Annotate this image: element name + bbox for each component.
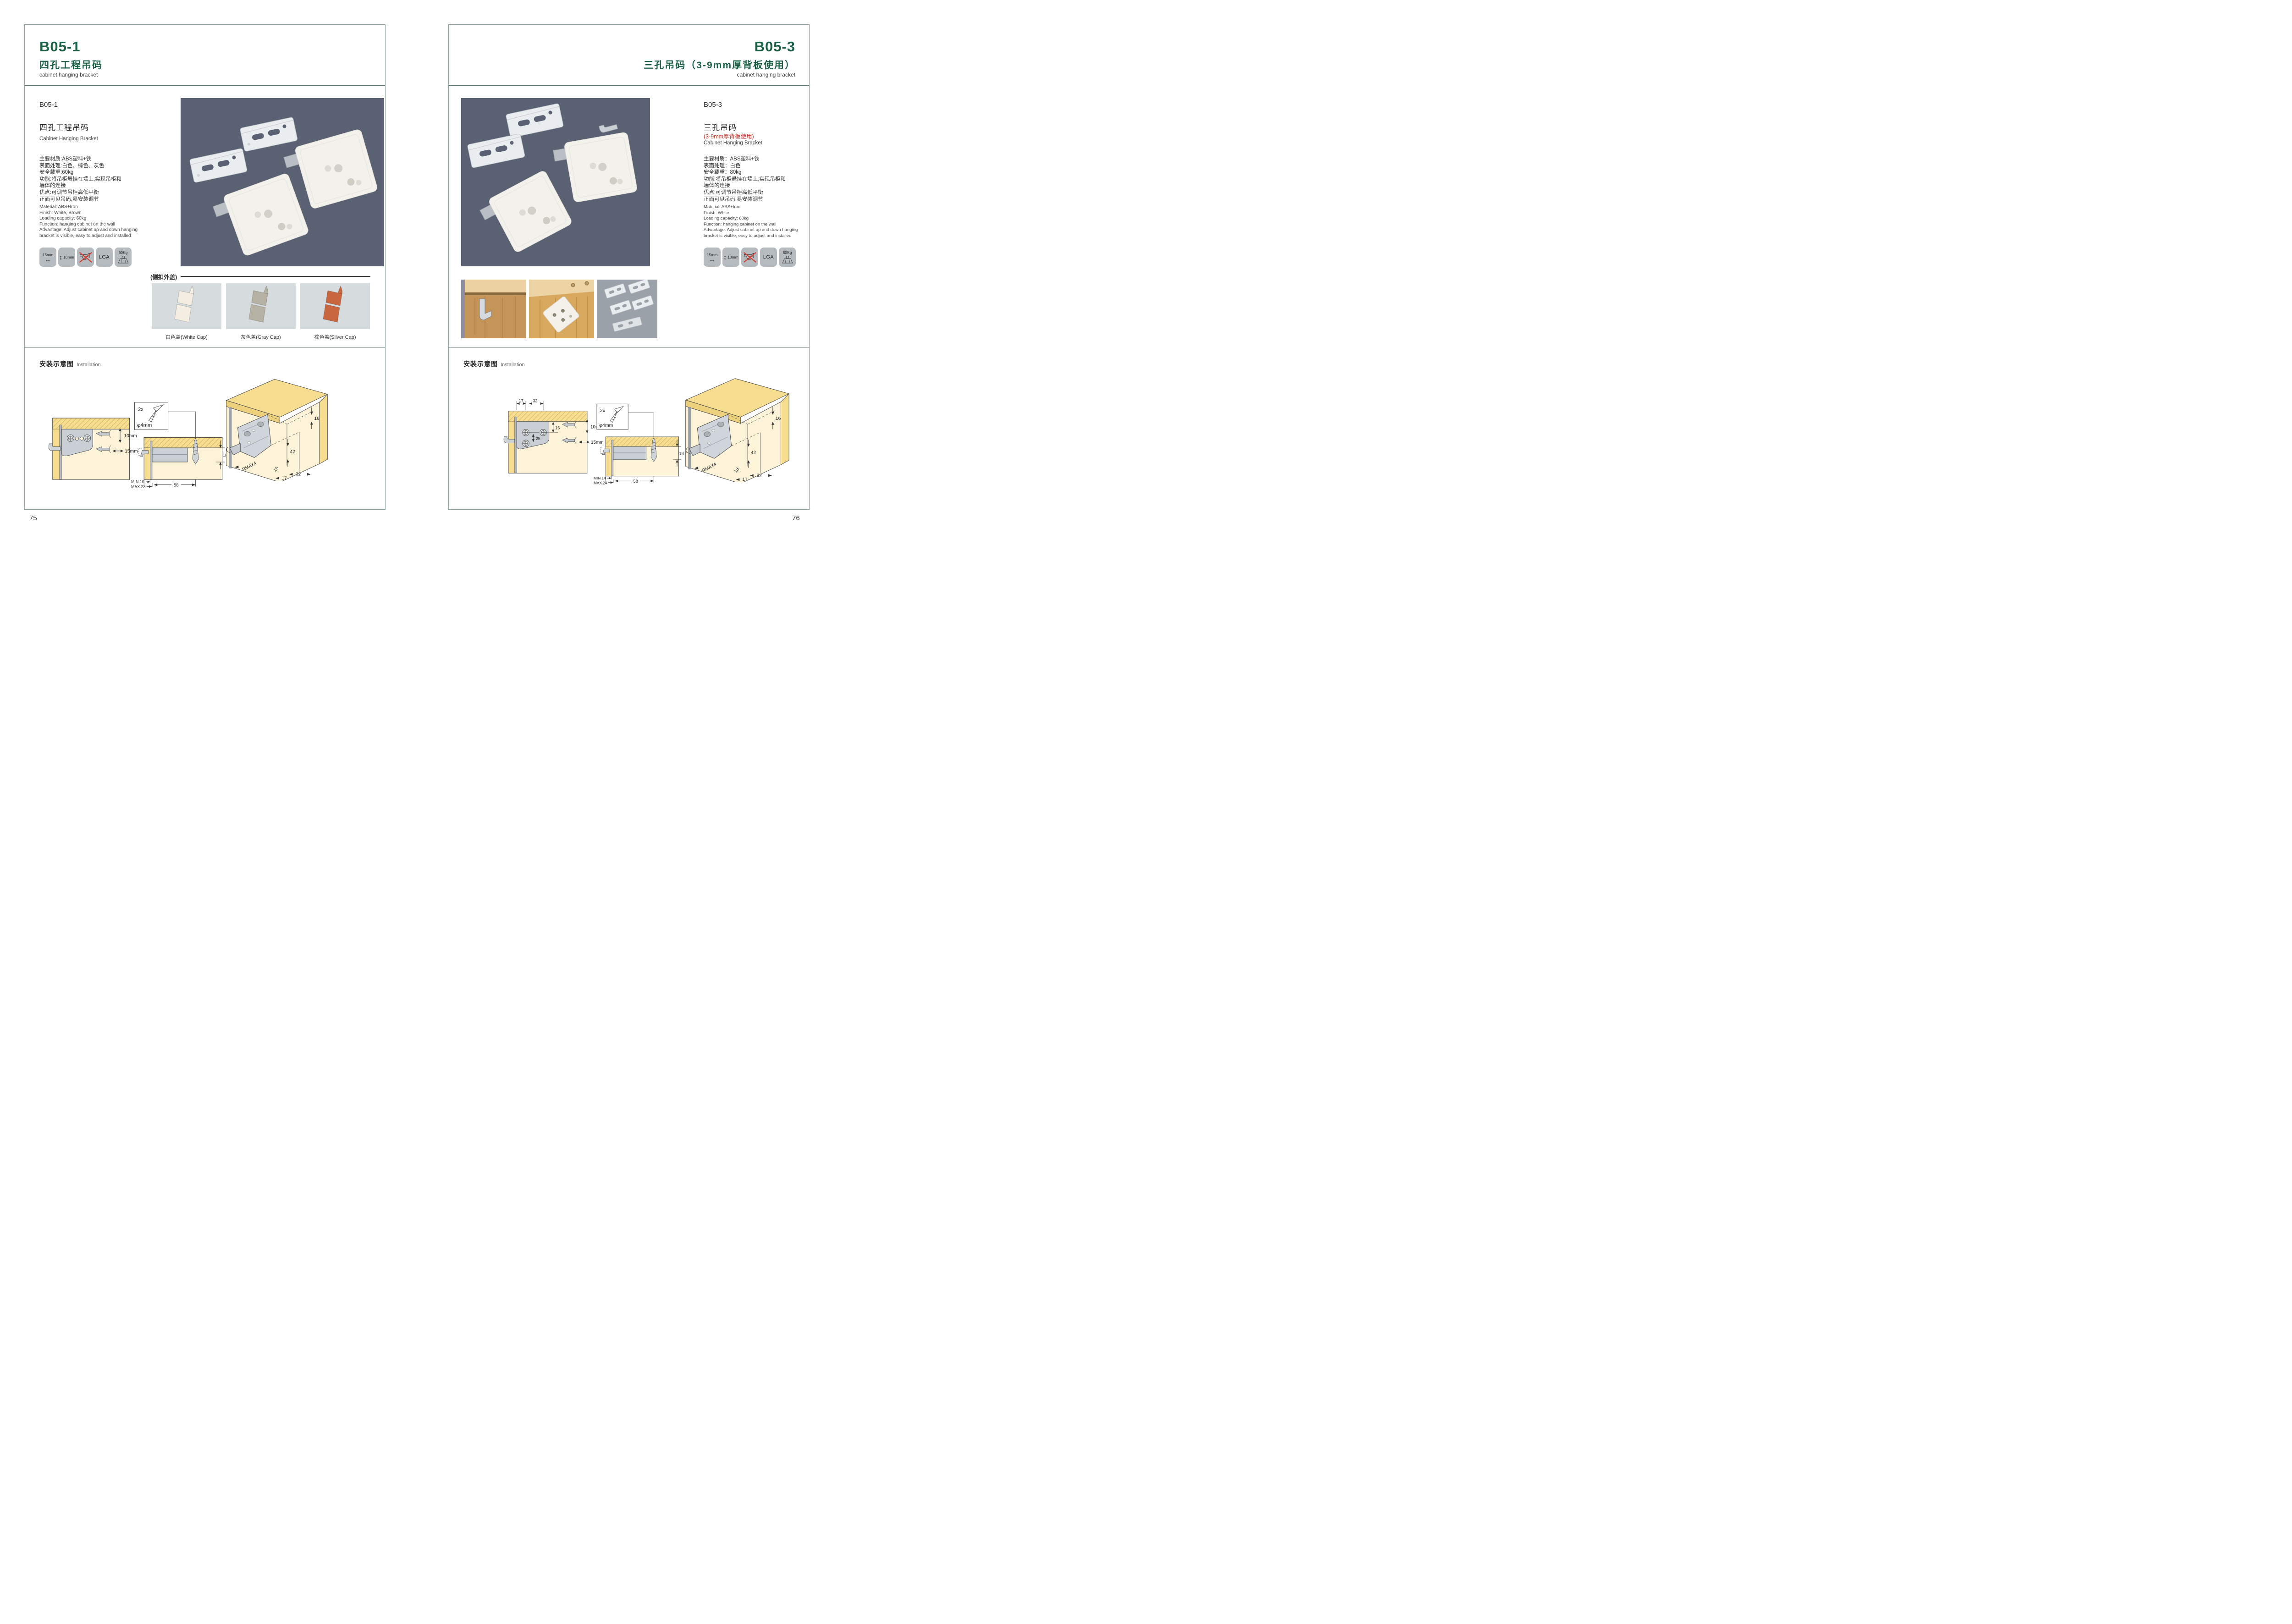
height-icon: ↕ 10mm — [722, 248, 739, 267]
spec-line: Advantage: Adjust cabinet up and down ha… — [704, 227, 798, 233]
product-code: B05-1 — [39, 101, 58, 109]
horizontal-arrow-icon: ↔ — [45, 258, 51, 262]
cap-swatch — [226, 283, 296, 329]
spec-line: 优点:可调节吊柜高低平衡 — [704, 189, 786, 196]
height-label: 10mm — [727, 255, 738, 259]
spec-line: bracket is visible, easy to adjust and i… — [704, 233, 798, 239]
vertical-arrow-icon: ↕ — [59, 253, 62, 261]
lga-icon: LGA — [96, 248, 113, 267]
svg-text:32: 32 — [296, 472, 301, 477]
svg-text:16: 16 — [555, 425, 560, 430]
svg-text:42: 42 — [290, 450, 296, 455]
svg-text:MAX.23: MAX.23 — [131, 484, 146, 489]
specs-chinese: 主要材质:ABS塑料+铁 表面处理:白色、棕色、灰色 安全载重:60kg 功能:… — [39, 156, 121, 203]
cap-label: 灰色盖(Gray Cap) — [226, 333, 296, 341]
specs-english: Material: ABS+Iron Finish: White, Brown … — [39, 204, 138, 239]
cap-white: 白色盖(White Cap) — [152, 283, 221, 341]
svg-text:17: 17 — [281, 476, 287, 481]
install-diagram-cabinet: 16 42 RMAX4 16 17 32 — [221, 373, 331, 481]
product-name-en: Cabinet Hanging Bracket — [39, 136, 98, 142]
svg-text:32: 32 — [533, 399, 537, 403]
spec-line: Finish: White, Brown — [39, 210, 138, 216]
spec-line: 表面处理:白色、棕色、灰色 — [39, 163, 121, 170]
spec-line: Loading capacity: 60kg — [39, 216, 138, 222]
no-drill-icon — [741, 248, 758, 267]
application-photo-bracket — [529, 280, 594, 338]
product-code-heading: B05-1 — [39, 39, 80, 55]
product-note-red: (3-9mm厚背板使用) — [704, 132, 754, 140]
horizontal-arrow-icon: ↔ — [709, 258, 715, 262]
spec-line: 墙体的连接 — [704, 182, 786, 189]
catalog-page-b05-3: B05-3 三孔吊码（3-9mm厚背板使用） cabinet hanging b… — [448, 24, 810, 510]
weight-icon: 80Kg — [779, 248, 796, 267]
page-header: B05-3 三孔吊码（3-9mm厚背板使用） cabinet hanging b… — [449, 25, 809, 86]
svg-text:MIN.14: MIN.14 — [594, 476, 606, 480]
catalog-spread: B05-1 四孔工程吊码 cabinet hanging bracket B05… — [0, 0, 830, 541]
application-photo-clip — [461, 280, 526, 338]
svg-text:2x: 2x — [600, 408, 606, 413]
product-name-en: Cabinet Hanging Bracket — [704, 140, 762, 146]
spec-line: 功能:将吊柜悬挂在墙上,实现吊柜和 — [39, 176, 121, 183]
caps-section-label: (侧扣外盖) — [150, 272, 177, 281]
product-name-cn: 四孔工程吊码 — [39, 121, 89, 132]
svg-text:17: 17 — [742, 477, 748, 482]
install-diagram-screw: 2x φ4mm — [131, 400, 234, 490]
svg-text:17: 17 — [519, 399, 523, 403]
spec-line: 表面处理：白色 — [704, 163, 786, 170]
lga-label: LGA — [99, 254, 110, 260]
lga-label: LGA — [763, 254, 774, 260]
weight-label: 80Kg — [783, 250, 792, 255]
specs-english: Material: ABS+Iron Finish: White Loading… — [704, 204, 798, 239]
catalog-page-b05-1: B05-1 四孔工程吊码 cabinet hanging bracket B05… — [24, 24, 386, 510]
weight-icon: 60Kg — [115, 248, 132, 267]
installation-title-en: Installation — [501, 362, 525, 368]
spec-line: 正面可见吊码,易安装调节 — [704, 196, 786, 203]
cap-label: 棕色盖(Silver Cap) — [300, 333, 370, 341]
no-drill-icon — [77, 248, 94, 267]
product-title-cn: 三孔吊码（3-9mm厚背板使用） — [644, 58, 795, 72]
width-icon: 15mm ↔ — [39, 248, 56, 267]
product-name-cn: 三孔吊码 — [704, 121, 737, 132]
install-diagram-section: 17 32 25 16 — [500, 397, 608, 480]
svg-text:φ4mm: φ4mm — [137, 423, 152, 428]
svg-text:MAX.24: MAX.24 — [594, 480, 607, 485]
section-divider — [25, 347, 385, 348]
svg-text:42: 42 — [751, 450, 756, 455]
svg-text:16: 16 — [776, 416, 781, 421]
installation-title: 安装示意图Installation — [463, 359, 525, 369]
spec-line: Loading capacity: 80kg — [704, 216, 798, 222]
product-title-cn: 四孔工程吊码 — [39, 58, 103, 72]
product-title-en: cabinet hanging bracket — [737, 72, 795, 78]
product-photo — [461, 98, 650, 266]
application-photos — [461, 280, 657, 338]
svg-text:MIN.10: MIN.10 — [131, 479, 144, 484]
product-title-en: cabinet hanging bracket — [39, 72, 98, 78]
page-number-right: 76 — [792, 514, 800, 522]
cap-label: 白色盖(White Cap) — [152, 333, 221, 341]
caps-row: 白色盖(White Cap) 灰色盖(Gray Cap) — [152, 283, 370, 341]
spec-line: bracket is visible, easy to adjust and i… — [39, 233, 138, 239]
width-icon: 15mm ↔ — [704, 248, 721, 267]
spec-line: Function: hanging cabinet on the wall — [704, 222, 798, 228]
spec-line: 安全载重：80kg — [704, 169, 786, 176]
spec-line: 墙体的连接 — [39, 182, 121, 189]
specs-chinese: 主要材质：ABS塑料+铁 表面处理：白色 安全载重：80kg 功能:将吊柜悬挂在… — [704, 156, 786, 203]
cap-gray: 灰色盖(Gray Cap) — [226, 283, 296, 341]
install-diagram-section: 10mm 15mm — [45, 406, 139, 483]
spec-line: Advantage: Adjust cabinet up and down ha… — [39, 227, 138, 233]
spec-line: Material: ABS+Iron — [39, 204, 138, 210]
install-diagram-cabinet: 16 42 RMAX4 18 17 32 — [680, 372, 793, 482]
lga-icon: LGA — [760, 248, 777, 267]
page-number-left: 75 — [29, 514, 37, 522]
spec-line: 主要材质:ABS塑料+铁 — [39, 156, 121, 163]
spec-line: 主要材质：ABS塑料+铁 — [704, 156, 786, 163]
svg-text:φ4mm: φ4mm — [599, 423, 613, 428]
spec-line: Function: hanging cabinet on the wall — [39, 222, 138, 228]
cap-swatch — [300, 283, 370, 329]
product-photo — [181, 98, 384, 266]
application-photo-plates — [597, 280, 657, 338]
cap-swatch — [152, 283, 221, 329]
svg-text:32: 32 — [757, 473, 762, 478]
svg-text:25: 25 — [536, 436, 540, 441]
caps-divider-line — [181, 276, 370, 277]
cap-brown: 棕色盖(Silver Cap) — [300, 283, 370, 341]
height-label: 10mm — [63, 255, 74, 259]
spec-line: 安全载重:60kg — [39, 169, 121, 176]
feature-icons: 15mm ↔ ↕ 10mm LGA 80Kg — [704, 248, 796, 267]
installation-title-en: Installation — [77, 362, 101, 368]
svg-text:58: 58 — [634, 479, 638, 484]
spec-line: Material: ABS+Iron — [704, 204, 798, 210]
svg-text:16: 16 — [314, 416, 320, 421]
weight-label: 60Kg — [119, 250, 128, 255]
installation-title-cn: 安装示意图 — [463, 360, 498, 368]
spec-line: 优点:可调节吊柜高低平衡 — [39, 189, 121, 196]
product-code-heading: B05-3 — [755, 39, 795, 55]
svg-text:58: 58 — [174, 483, 179, 488]
spec-line: 正面可见吊码,易安装调节 — [39, 196, 121, 203]
vertical-arrow-icon: ↕ — [723, 253, 727, 261]
installation-title: 安装示意图Installation — [39, 359, 101, 369]
svg-text:2x: 2x — [138, 407, 143, 412]
section-divider — [449, 347, 809, 348]
spec-line: 功能:将吊柜悬挂在墙上,实现吊柜和 — [704, 176, 786, 183]
page-header: B05-1 四孔工程吊码 cabinet hanging bracket — [25, 25, 385, 86]
product-code: B05-3 — [704, 101, 722, 109]
height-icon: ↕ 10mm — [58, 248, 75, 267]
spec-line: Finish: White — [704, 210, 798, 216]
feature-icons: 15mm ↔ ↕ 10mm LGA 60Kg — [39, 248, 132, 267]
installation-title-cn: 安装示意图 — [39, 360, 74, 368]
install-diagram-screw: 2x φ4mm — [594, 402, 690, 486]
